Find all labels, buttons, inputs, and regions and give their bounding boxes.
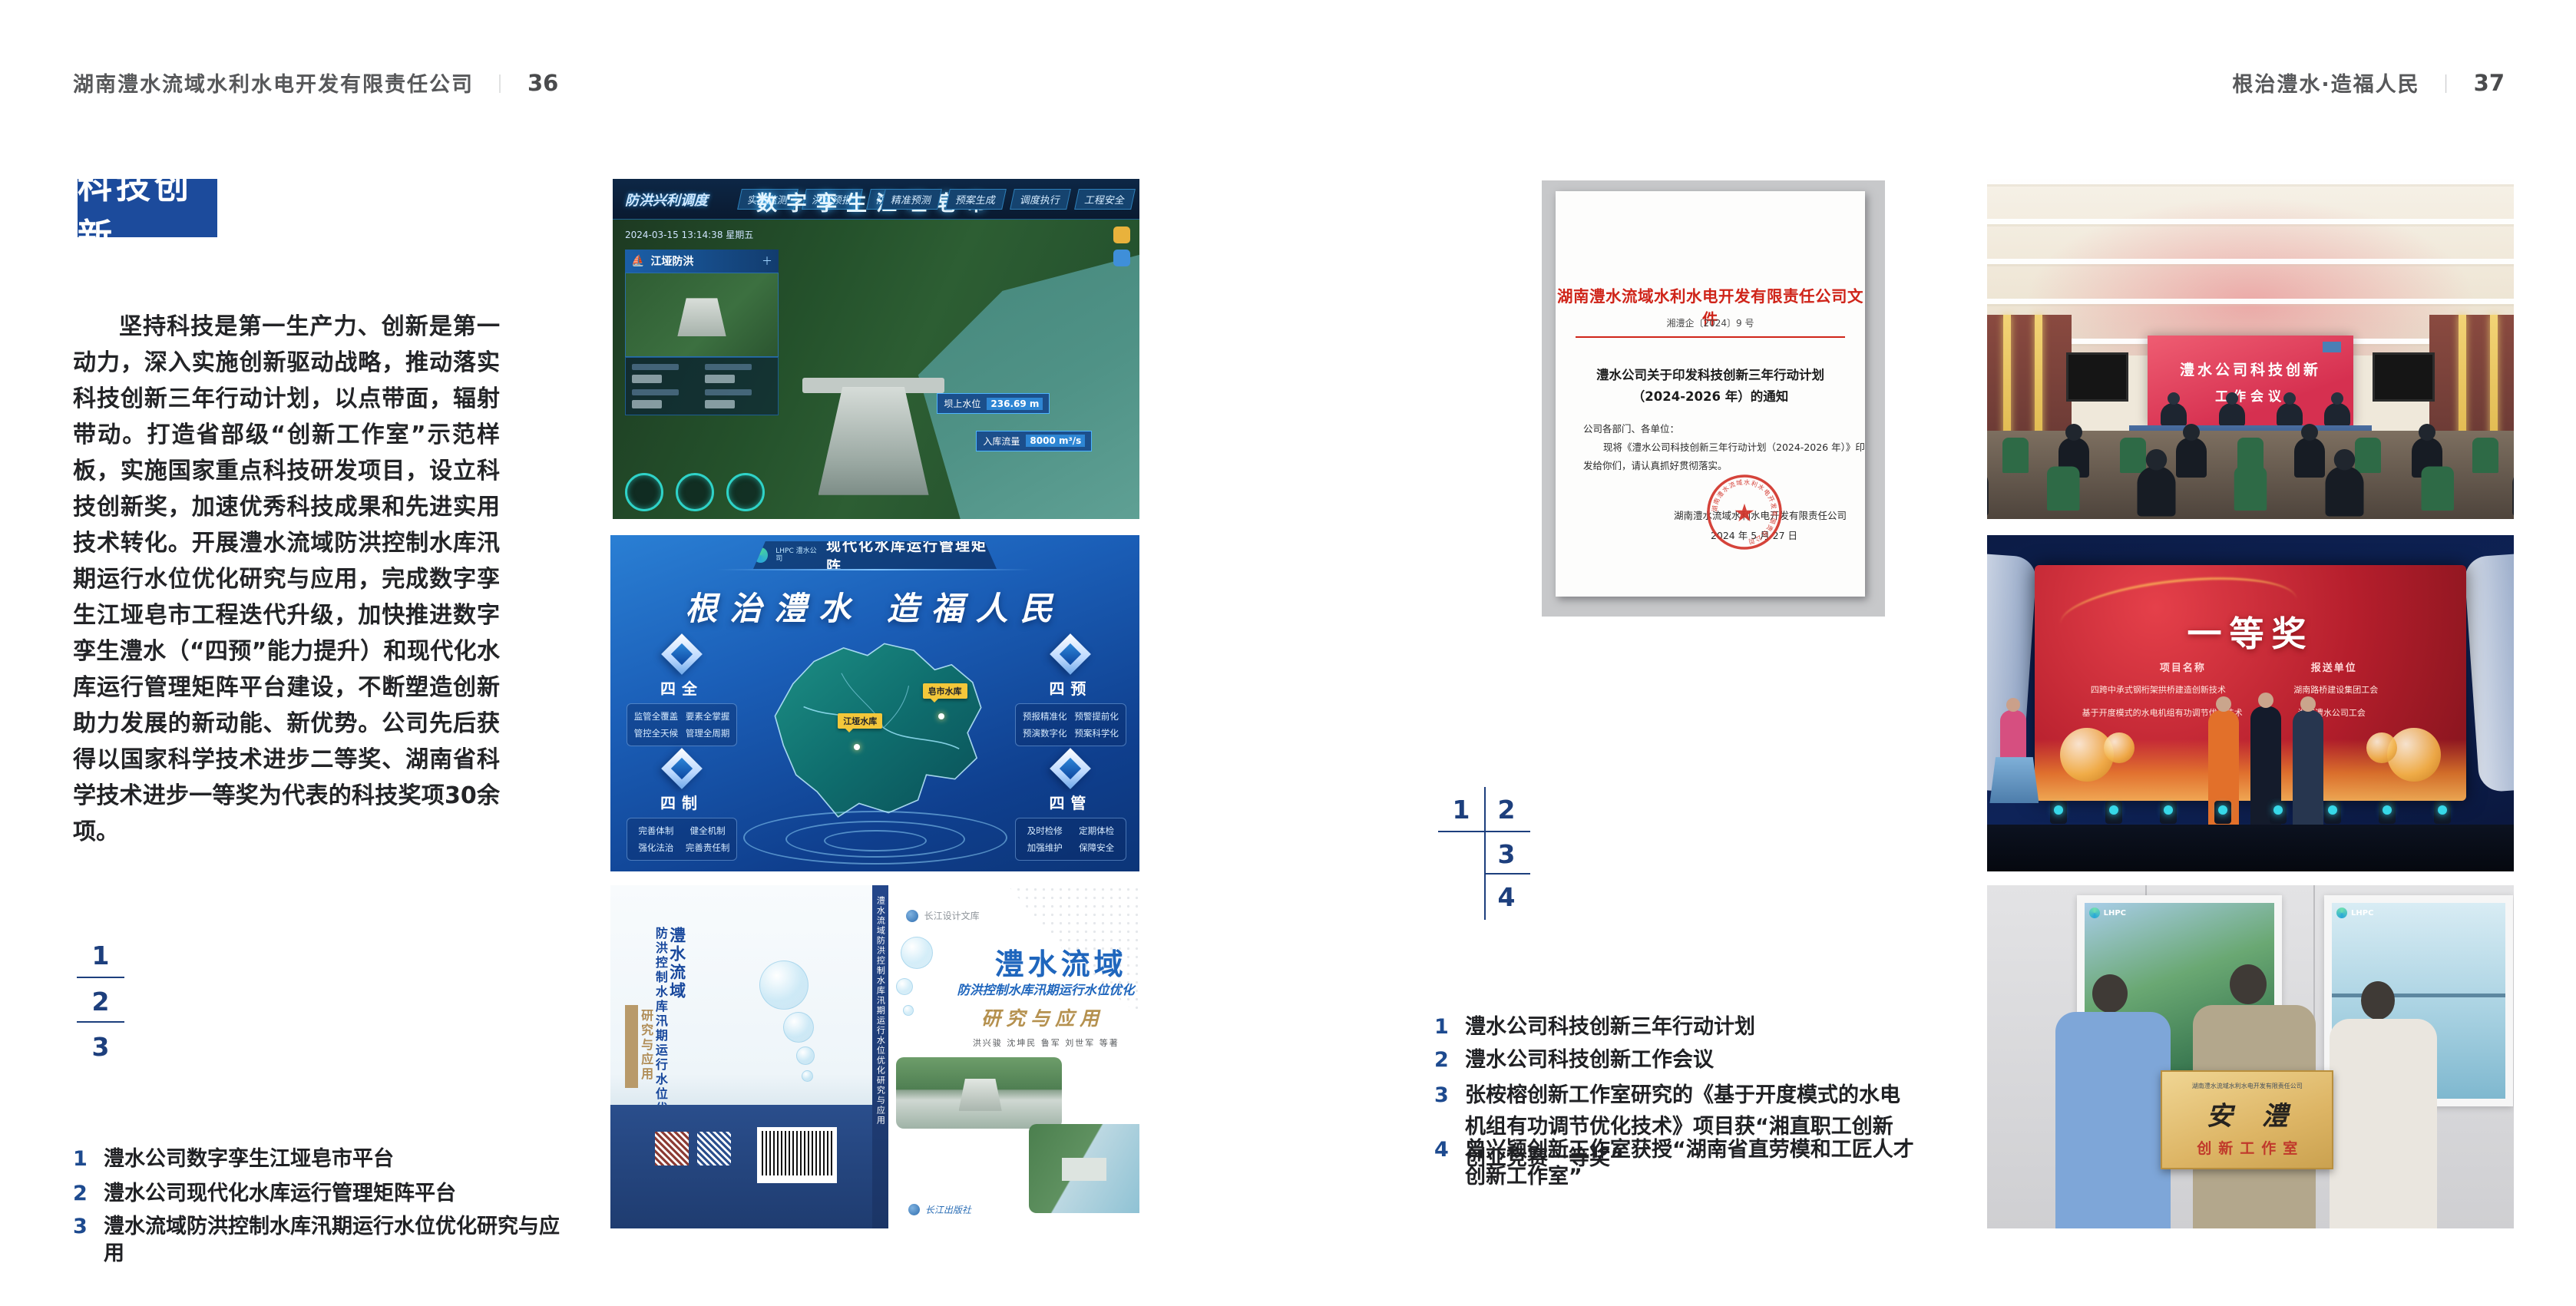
attendee-silhouette: [2325, 466, 2363, 516]
header-glow-line: [716, 569, 1033, 570]
water-bubble: [759, 960, 809, 1010]
qr-code: [655, 1132, 689, 1165]
stage-light: [2270, 801, 2287, 824]
header-divider: ｜: [491, 69, 511, 96]
lhpc-logo-text: LHPC: [2351, 909, 2373, 918]
figure-index-3: 3: [77, 1034, 124, 1060]
page-number-right: 37: [2474, 70, 2505, 96]
panel-items: 及时检修 定期体检 加强维护 保障安全: [1015, 818, 1126, 861]
map-tag-jiangya: 江垭水库: [838, 713, 882, 729]
chair: [2422, 466, 2455, 511]
panel-item: 加强维护: [1020, 841, 1069, 854]
audience-row: [1987, 466, 2514, 516]
gauge-ring: [676, 473, 714, 511]
lhpc-logo-icon: [2336, 908, 2347, 918]
figure-book-cover: 澧水流域 防洪控制水库汛期运行水位优化 研究与应用 澧水流域防洪控制水库汛期运行…: [610, 885, 1139, 1228]
stat-placeholder: [705, 389, 772, 408]
caption-text: 澧水流域防洪控制水库汛期运行水位优化研究与应用: [104, 1213, 564, 1267]
lhpc-logo-icon: [753, 547, 768, 563]
panel-item: 预案科学化: [1072, 727, 1120, 739]
dam-structure: [677, 298, 726, 336]
caption-number: 2: [73, 1180, 104, 1207]
panel-item: 要素全掌握: [683, 710, 732, 722]
publisher-logo: 长江出版社: [908, 1203, 971, 1216]
dashboard-tab: 工程安全: [1074, 189, 1136, 210]
caption-text: 澧水公司科技创新三年行动计划: [1465, 1013, 1926, 1040]
dam-structure: [818, 387, 929, 495]
document-paper: 湖南澧水流域水利水电开发有限责任公司文件 湘澧企〔2024〕9 号 澧水公司关于…: [1556, 191, 1865, 597]
panel-item: 完善体制: [632, 825, 680, 837]
dam-thumbnail: [625, 273, 779, 357]
map-tag-zaoshi: 皂市水库: [923, 683, 967, 699]
header-divider: ｜: [2437, 69, 2457, 96]
side-wall: [1987, 315, 2072, 444]
stat-placeholder: [705, 364, 772, 383]
seal-star-icon: ★: [1734, 498, 1756, 527]
matrix-panel-siquan: 四全 监管全覆盖 要素全掌握 管控全天候 管理全周期: [627, 640, 738, 746]
spine-title: 澧水流域防洪控制水库汛期运行水位优化研究与应用: [874, 896, 886, 1126]
caption-row: 2 澧水公司科技创新工作会议: [1434, 1046, 1926, 1073]
panel-item: 预警提前化: [1072, 710, 1120, 722]
matrix-panel-siyu: 四预 预报精准化 预警提前化 预演数字化 预案科学化: [1015, 640, 1126, 746]
section-title-badge: 科技创新: [78, 179, 217, 237]
figure-plaque-photo: LHPC LHPC 湖南澧水流域水利水电开发有限责任公司 安澧 创新工作室: [1987, 885, 2514, 1228]
panelist-silhouette: [2161, 403, 2187, 426]
gauge-ring: [726, 473, 765, 511]
alert-icon: [1113, 226, 1130, 243]
back-accent: 研究与应用: [637, 1009, 655, 1082]
panelist-silhouette: [2277, 403, 2303, 426]
caption-number: 4: [1434, 1136, 1465, 1190]
panel-item: 定期体检: [1072, 825, 1120, 837]
stage-light: [2214, 801, 2231, 824]
wall-tv: [2066, 352, 2128, 402]
stage-light: [2434, 801, 2451, 824]
book-spine: 澧水流域防洪控制水库汛期运行水位优化研究与应用: [872, 885, 888, 1228]
document-title-line2: （2024-2026 年）的通知: [1556, 386, 1865, 405]
barcode: [757, 1127, 837, 1183]
water-bubble: [783, 1012, 814, 1043]
panel-items: 监管全覆盖 要素全掌握 管控全天候 管理全周期: [627, 703, 738, 746]
figure-meeting-photo: 澧水公司科技创新 工作会议: [1987, 179, 2514, 519]
figure-official-document: 湖南澧水流域水利水电开发有限责任公司文件 湘澧企〔2024〕9 号 澧水公司关于…: [1542, 180, 1885, 617]
book-accent-title: 研究与应用: [981, 1003, 1104, 1031]
publisher-name: 长江出版社: [925, 1203, 971, 1216]
panel-item: 管控全天候: [632, 727, 680, 739]
running-head-right: 根治澧水·造福人民 ｜ 37: [2232, 68, 2505, 98]
side-wall: [2429, 315, 2514, 444]
expand-icon: ＋: [762, 253, 772, 269]
lhpc-logo-text: LHPC: [2104, 909, 2126, 918]
caption-number: 1: [73, 1146, 104, 1172]
stage-light: [2050, 801, 2067, 824]
dam-structure: [959, 1079, 1002, 1111]
caption-text: 澧水公司科技创新工作会议: [1465, 1046, 1926, 1073]
qr-code: [697, 1132, 731, 1165]
caption-text: 澧水公司数字孪生江垭皂市平台: [104, 1146, 564, 1172]
lhpc-logo: LHPC: [2089, 908, 2126, 918]
figure-management-matrix: LHPC 澧水公司 现代化水库运行管理矩阵 根治澧水 造福人民 江垭水库 皂市水…: [610, 535, 1139, 871]
stat-label: 坝上水位: [944, 397, 980, 410]
panel-items: 完善体制 健全机制 强化法治 完善责任制: [627, 818, 738, 861]
panel-item: 保障安全: [1072, 841, 1120, 854]
glow-sphere: [2366, 732, 2397, 763]
reflective-stage-floor: [1987, 825, 2514, 871]
stat-value: 8000 m³/s: [1026, 435, 1085, 447]
plaque-subtitle: 创新工作室: [2190, 1137, 2304, 1158]
series-logo: 长江设计文库: [906, 909, 980, 922]
figure-award-ceremony: 一等奖 项目名称 报送单位 四跨中承式钢桁架拱桥建造创新技术 湖南路桥建设集团工…: [1987, 535, 2514, 871]
index-divider: [77, 1021, 124, 1023]
figure-index-2: 2: [77, 989, 124, 1014]
matrix-header: LHPC 澧水公司 现代化水库运行管理矩阵: [753, 541, 997, 569]
gauge-ring: [625, 473, 663, 511]
attendee-silhouette: [2512, 466, 2514, 516]
generator-gauges: [625, 473, 765, 511]
company-name: 湖南澧水流域水利水电开发有限责任公司: [73, 68, 474, 98]
figure-digital-twin-dashboard: 防洪兴利调度 实时监测 洪水预报 防洪预警 数字孪生江垭皂市 精准预测 预案生成…: [613, 179, 1139, 519]
book-subtitle: 防洪控制水库汛期运行水位优化: [957, 980, 1134, 998]
panel-item: 管理全周期: [683, 727, 732, 739]
caption-row: 1 澧水公司数字孪生江垭皂市平台: [73, 1146, 564, 1172]
panel-item: 健全机制: [683, 825, 732, 837]
person-head: [2230, 964, 2267, 1004]
panel-item: 完善责任制: [683, 841, 732, 854]
panel-title: 江垭防洪: [650, 253, 693, 269]
panel-items: 预报精准化 预警提前化 预演数字化 预案科学化: [1015, 703, 1126, 746]
book-authors: 洪兴骏 沈坤民 鲁军 刘世军 等著: [973, 1037, 1119, 1049]
watershed-outline: [775, 643, 980, 817]
chair: [2234, 466, 2267, 511]
caption-row: 2 澧水公司现代化水库运行管理矩阵平台: [73, 1180, 564, 1207]
caption-row: 4 曾兴颖创新工作室获授“湖南省直劳模和工匠人才创新工作室”: [1434, 1136, 1926, 1190]
water-bubble: [903, 1005, 914, 1016]
dashboard-header-bar: 防洪兴利调度 实时监测 洪水预报 防洪预警 数字孪生江垭皂市 精准预测 预案生成…: [613, 179, 1139, 220]
glow-sphere: [2104, 732, 2135, 763]
document-title-line1: 澧水公司关于印发科技创新三年行动计划: [1556, 365, 1865, 383]
stat-placeholder: [632, 364, 699, 383]
caption-text: 曾兴颖创新工作室获授“湖南省直劳模和工匠人才创新工作室”: [1465, 1136, 1926, 1190]
first-prize-title: 一等奖: [2035, 606, 2467, 656]
running-head-left: 湖南澧水流域水利水电开发有限责任公司 ｜ 36: [73, 68, 558, 98]
chair: [2047, 466, 2080, 511]
figure-index-2: 2: [1483, 797, 1530, 822]
index-divider: [77, 977, 124, 978]
panelist-silhouette: [2219, 403, 2245, 426]
flood-control-panel: ⛵ 江垭防洪 ＋: [625, 250, 779, 415]
official-red-seal: 湖南澧水流域水利水电开发有限责任公司 ★: [1706, 474, 1783, 551]
panel-item: 预报精准化: [1020, 710, 1069, 722]
panel-item: 强化法治: [632, 841, 680, 854]
lhpc-logo: LHPC: [2336, 908, 2373, 918]
innovation-studio-plaque: 湖南澧水流域水利水电开发有限责任公司 安澧 创新工作室: [2161, 1070, 2333, 1169]
stat-placeholder: [632, 389, 699, 408]
ripple-ring: [824, 830, 927, 851]
inflow-tooltip: 入库流量 8000 m³/s: [976, 431, 1092, 451]
slogan: 根治澧水·造福人民: [2232, 68, 2419, 98]
water-bubble: [802, 1070, 813, 1082]
stat-value: 236.69 m: [987, 398, 1043, 410]
woman-white-shirt: [2330, 1019, 2437, 1228]
caption-text: 澧水公司现代化水库运行管理矩阵平台: [104, 1180, 564, 1207]
award-project: 四跨中承式钢桁架拱桥建造创新技术: [2091, 683, 2226, 696]
panel-icon: [1050, 633, 1092, 675]
book-title: 澧水流域: [995, 941, 1127, 983]
document-body-line1: 现将《澧水公司科技创新三年行动计划（2024-2026 年）》印: [1603, 438, 1865, 456]
stage-light: [2105, 801, 2122, 824]
dashboard-tab: 精准预测: [881, 189, 942, 210]
stat-label: 入库流量: [983, 435, 1020, 448]
caption-number: 2: [1434, 1046, 1465, 1073]
panel-title: 四制: [627, 791, 738, 813]
index-divider: [1438, 831, 1530, 832]
man-blue-polo: [2055, 1012, 2171, 1228]
panel-icon: [1050, 748, 1092, 789]
body-paragraph: 坚持科技是第一生产力、创新是第一动力，深入实施创新驱动战略，推动落实科技创新三年…: [73, 309, 500, 850]
stage-light: [2160, 801, 2177, 824]
water-bubble: [896, 978, 913, 995]
column-label-unit: 报送单位: [2311, 660, 2357, 674]
layers-icon: [1113, 250, 1130, 266]
dam-photo: [896, 1057, 1062, 1129]
index-divider: [1484, 873, 1530, 875]
red-rule: [1576, 336, 1845, 338]
panel-icon: [661, 633, 703, 675]
water-level-tooltip: 坝上水位 236.69 m: [937, 393, 1050, 414]
publisher-icon: [908, 1204, 920, 1215]
panel-header: ⛵ 江垭防洪 ＋: [625, 250, 779, 273]
dashboard-side-icons: [1113, 226, 1130, 266]
stage-light: [2324, 801, 2341, 824]
attendee-silhouette: [1987, 466, 1989, 516]
stage-lights-row: [2050, 801, 2450, 824]
screen-title-line1: 澧水公司科技创新: [2180, 359, 2321, 379]
caption-number: 1: [1434, 1013, 1465, 1040]
wall-tv: [2373, 352, 2435, 402]
stage-side-panel: [2464, 554, 2514, 793]
sail-icon: ⛵: [631, 255, 644, 267]
dashboard-tab: 调度执行: [1010, 189, 1071, 210]
caption-row: 1 澧水公司科技创新三年行动计划: [1434, 1013, 1926, 1040]
lhpc-logo-icon: [2089, 908, 2100, 918]
document-salutation: 公司各部门、各单位：: [1583, 420, 1679, 438]
person-head: [2361, 981, 2395, 1020]
water-bubble: [901, 937, 933, 969]
dam-structure: [1062, 1158, 1106, 1181]
dashboard-timestamp: 2024-03-15 13:14:38 星期五: [625, 228, 753, 241]
matrix-panel-sizhi: 四制 完善体制 健全机制 强化法治 完善责任制: [627, 754, 738, 861]
map-marker-dot: [854, 744, 860, 750]
plaque-header: 湖南澧水流域水利水电开发有限责任公司: [2192, 1082, 2303, 1090]
matrix-panel-siguan: 四管 及时检修 定期体检 加强维护 保障安全: [1015, 754, 1126, 861]
book-back-cover: 澧水流域 防洪控制水库汛期运行水位优化 研究与应用: [610, 885, 872, 1228]
caption-row: 3 澧水流域防洪控制水库汛期运行水位优化研究与应用: [73, 1213, 564, 1267]
series-name: 长江设计文库: [924, 909, 980, 922]
panel-item: 监管全覆盖: [632, 710, 680, 722]
water-bubble: [796, 1046, 815, 1065]
attendee-silhouette: [2138, 466, 2176, 516]
panel-icon: [661, 748, 703, 789]
document-number: 湘澧企〔2024〕9 号: [1556, 316, 1865, 329]
magazine-spread: 湖南澧水流域水利水电开发有限责任公司 ｜ 36 根治澧水·造福人民 ｜ 37 科…: [0, 0, 2576, 1306]
panel-stats-grid: [625, 357, 779, 415]
panel-item: 预演数字化: [1020, 727, 1069, 739]
lhpc-logo-text: LHPC 澧水公司: [775, 547, 818, 563]
dashboard-tabs-right: 精准预测 预案生成 调度执行 工程安全: [883, 189, 1133, 210]
document-body-line2: 发给你们，请认真抓好贯彻落实。: [1583, 457, 1728, 474]
dam-photo: [1029, 1124, 1139, 1213]
panel-title: 四预: [1015, 676, 1126, 699]
panel-title: 四管: [1015, 791, 1126, 813]
figure-index-4: 4: [1483, 884, 1530, 910]
dashboard-tab: 预案生成: [945, 189, 1007, 210]
award-unit: 湖南路桥建设集团工会: [2293, 683, 2378, 696]
bridge-graphic: [2332, 994, 2505, 997]
screen-logo-chip: [2323, 342, 2341, 352]
panel-title: 四全: [627, 676, 738, 699]
panel-item: 及时检修: [1020, 825, 1069, 837]
back-cover-band: [610, 1105, 872, 1228]
book-front-cover: 长江设计文库 澧水流域 防洪控制水库汛期运行水位优化 研究与应用 洪兴骏 沈坤民…: [888, 885, 1139, 1228]
podium: [1989, 757, 2039, 803]
stage-light: [2379, 801, 2396, 824]
caption-number: 3: [73, 1213, 104, 1267]
column-label-project: 项目名称: [2160, 660, 2206, 674]
figure-index-1: 1: [1437, 797, 1485, 822]
page-number-left: 36: [527, 70, 558, 96]
panelist-silhouette: [2324, 403, 2350, 426]
figure-index-3: 3: [1483, 841, 1530, 867]
figure-index-1: 1: [77, 943, 124, 968]
plaque-name: 安澧: [2178, 1095, 2317, 1132]
globe-icon: [906, 910, 918, 922]
